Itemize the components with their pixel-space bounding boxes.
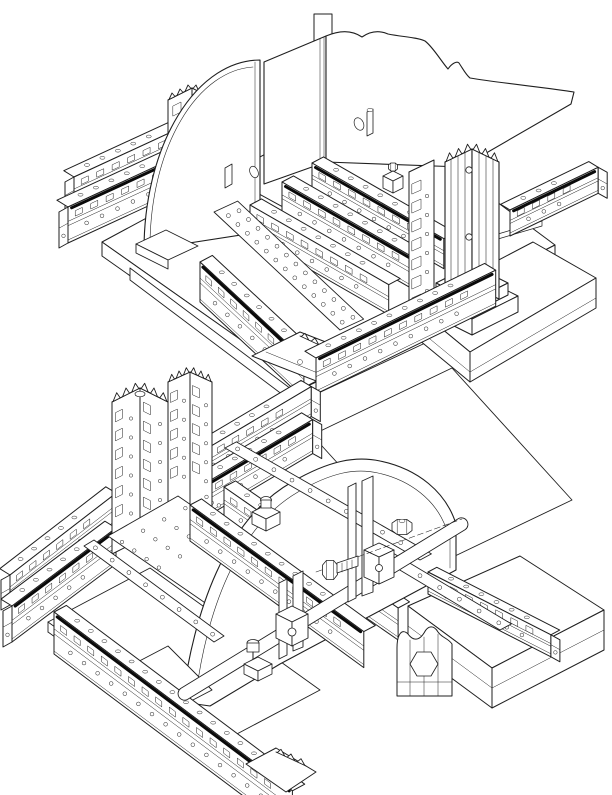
center-rails xyxy=(357,246,361,250)
drilled-base-plate xyxy=(205,495,209,499)
front-rail xyxy=(164,722,168,726)
center-rails xyxy=(345,253,350,256)
front-rail xyxy=(232,773,236,777)
center-rails xyxy=(304,187,309,190)
center-rails xyxy=(392,238,397,241)
tall-perforated-column xyxy=(204,423,207,426)
threaded-rod xyxy=(323,561,338,580)
front-right-rail xyxy=(424,327,428,331)
center-rails xyxy=(295,251,299,255)
front-rail xyxy=(137,702,141,706)
diagonal-drilled-strap xyxy=(284,253,288,257)
front-right-rail xyxy=(378,349,382,353)
front-left-rail xyxy=(257,306,262,309)
front-rail xyxy=(224,732,229,735)
diagonal-drilled-strap xyxy=(110,558,114,562)
fluted-column xyxy=(466,167,472,173)
diagonal-drilled-strap xyxy=(497,621,501,625)
diagonal-drilled-strap xyxy=(256,226,260,230)
diagonal-drilled-strap xyxy=(247,218,251,222)
diagonal-drilled-strap xyxy=(308,489,312,493)
diagonal-drilled-strap xyxy=(254,457,258,461)
diagonal-drilled-strap xyxy=(264,249,268,253)
front-right-rail xyxy=(341,336,346,339)
front-rail xyxy=(143,670,148,673)
front-left-rail xyxy=(282,329,287,332)
mid-rail-front xyxy=(246,570,250,574)
left-rails xyxy=(61,558,66,561)
right-rail xyxy=(536,189,541,192)
center-rails xyxy=(363,221,368,224)
perforated-strip xyxy=(425,213,429,217)
center-rails xyxy=(357,209,361,213)
front-rail xyxy=(156,681,161,684)
front-right-rail xyxy=(356,329,361,332)
front-right-rail xyxy=(418,299,423,302)
mid-rail-back xyxy=(245,494,250,497)
left-perforated-beam xyxy=(116,207,120,211)
left-perforated-beam xyxy=(85,221,89,225)
left-rails xyxy=(6,633,10,637)
left-rails xyxy=(72,516,77,519)
diagonal-drilled-strap xyxy=(266,235,270,239)
drilled-base-plate xyxy=(141,529,145,533)
diagonal-drilled-strap xyxy=(236,447,240,451)
left-rails xyxy=(32,547,37,550)
diagonal-drilled-strap xyxy=(245,231,249,235)
diagonal-drilled-strap xyxy=(144,583,148,587)
center-rails xyxy=(325,268,329,272)
upper-right-beam xyxy=(264,405,269,408)
tall-perforated-column xyxy=(129,417,132,420)
assembly-figure-top xyxy=(57,14,607,404)
right-slab-rail xyxy=(479,593,484,596)
diagonal-drilled-strap xyxy=(312,294,316,298)
mid-rail-front xyxy=(265,552,270,555)
upper-right-beam xyxy=(249,414,254,417)
mid-rail-front xyxy=(307,582,312,585)
center-rails xyxy=(333,204,338,207)
front-rail xyxy=(184,701,189,704)
tall-perforated-column xyxy=(158,422,161,425)
tall-perforated-column xyxy=(204,442,207,445)
front-right-rail xyxy=(394,342,398,346)
mid-rail-front xyxy=(210,512,215,515)
vertical-bolt xyxy=(247,643,259,652)
left-rails xyxy=(67,586,71,590)
assembly-figure-bottom xyxy=(0,368,604,795)
left-rails xyxy=(59,527,64,530)
center-rails xyxy=(327,229,331,233)
diagonal-drilled-strap xyxy=(457,597,461,601)
tall-perforated-column xyxy=(158,479,161,482)
front-rail xyxy=(177,733,181,737)
center-rails xyxy=(318,196,323,199)
center-rails xyxy=(331,244,336,247)
front-left-rail xyxy=(269,317,274,320)
upper-right-beam xyxy=(232,457,237,460)
left-perforated-beam xyxy=(124,172,129,175)
front-rail xyxy=(109,682,113,686)
left-perforated-beam xyxy=(109,179,114,182)
clamp-post-left xyxy=(288,628,296,636)
diagonal-drilled-strap xyxy=(294,262,298,266)
front-rail xyxy=(197,711,202,714)
front-rail xyxy=(191,743,195,747)
front-left-rail xyxy=(250,336,254,340)
mid-rail-front xyxy=(224,522,229,525)
front-right-rail xyxy=(402,307,407,310)
center-rails xyxy=(286,219,291,222)
drilled-base-plate xyxy=(166,546,170,550)
left-perforated-beam xyxy=(85,164,90,167)
tall-perforated-column xyxy=(182,418,185,421)
mid-rail-front xyxy=(320,592,325,595)
center-rails xyxy=(272,210,277,213)
left-rails xyxy=(45,537,50,540)
front-rail xyxy=(69,651,73,655)
left-perforated-beam xyxy=(115,149,120,152)
front-right-rail xyxy=(433,292,438,295)
drilled-base-plate xyxy=(175,526,179,530)
drilled-base-plate xyxy=(184,506,188,510)
center-rails xyxy=(348,213,353,216)
front-rail xyxy=(252,752,257,755)
clamp-post-right xyxy=(376,565,383,572)
front-left-rail xyxy=(219,271,224,274)
diagonal-drilled-strap xyxy=(226,214,230,218)
front-rail xyxy=(123,692,127,696)
clamp-block xyxy=(389,163,398,171)
upper-right-beam xyxy=(315,445,319,449)
mid-rail-front xyxy=(273,590,277,594)
diagonal-drilled-strap xyxy=(272,468,276,472)
front-rail xyxy=(170,691,175,694)
front-corner-profile xyxy=(298,360,303,365)
left-rails xyxy=(33,578,38,581)
front-rail xyxy=(150,712,154,716)
hex-nut xyxy=(399,519,405,523)
diagonal-drilled-strap xyxy=(236,223,240,227)
diagonal-drilled-strap xyxy=(418,574,422,578)
diagonal-drilled-strap xyxy=(381,530,385,534)
front-right-rail xyxy=(333,372,337,376)
mid-rail-front xyxy=(218,550,222,554)
mid-rail-front xyxy=(232,560,236,564)
right-slab-rail xyxy=(520,633,524,637)
front-rail xyxy=(211,721,216,724)
mid-rail-front xyxy=(260,580,264,584)
front-rail xyxy=(82,661,86,665)
front-rail xyxy=(205,753,209,757)
mid-rail-front xyxy=(205,540,209,544)
front-rail xyxy=(245,784,249,788)
left-perforated-beam xyxy=(62,234,66,238)
left-perforated-beam xyxy=(100,156,105,159)
diagonal-drilled-strap xyxy=(351,315,355,319)
diagonal-drilled-strap xyxy=(275,244,279,248)
diagonal-drilled-strap xyxy=(326,499,330,503)
technical-drawing-page xyxy=(0,0,612,795)
center-rails xyxy=(342,238,346,242)
right-rail xyxy=(601,186,605,190)
center-rails xyxy=(360,261,365,264)
pin-post xyxy=(367,108,373,111)
left-rails xyxy=(18,558,23,561)
left-rails xyxy=(54,596,58,600)
right-slab-rail xyxy=(524,616,529,619)
fluted-column xyxy=(466,234,472,240)
front-rail xyxy=(238,742,243,745)
diagonal-drilled-strap xyxy=(332,298,336,302)
upper-right-beam xyxy=(254,475,258,479)
diagonal-drilled-strap xyxy=(127,571,131,575)
diagonal-drilled-strap xyxy=(331,311,335,315)
right-rail xyxy=(542,210,546,214)
mid-rail-front xyxy=(287,600,291,604)
tall-perforated-column xyxy=(182,456,185,459)
front-rail xyxy=(129,660,134,663)
tall-perforated-column xyxy=(129,436,132,439)
rail-bolt-block xyxy=(261,500,271,508)
center-rails xyxy=(328,192,332,196)
tall-perforated-column xyxy=(182,399,185,402)
drilled-base-plate xyxy=(162,518,166,522)
right-slab-rail xyxy=(449,577,454,580)
diagonal-drilled-strap xyxy=(194,620,198,624)
front-right-rail xyxy=(448,284,453,287)
tall-perforated-column xyxy=(129,455,132,458)
mid-rail-back xyxy=(239,519,243,523)
center-rails xyxy=(343,200,347,204)
center-rails xyxy=(377,230,382,233)
right-slab-rail xyxy=(554,651,558,655)
front-left-rail xyxy=(244,294,249,297)
diagonal-drilled-strap xyxy=(293,276,297,280)
center-rails xyxy=(313,221,317,225)
left-perforated-beam xyxy=(146,135,151,138)
drilled-base-plate xyxy=(154,538,158,542)
perforated-strip xyxy=(425,270,429,274)
front-rail xyxy=(218,763,222,767)
drilled-base-plate xyxy=(120,540,124,544)
drilled-base-plate xyxy=(133,549,137,553)
tall-perforated-column xyxy=(182,437,185,440)
right-rail xyxy=(557,202,561,206)
left-perforated-beam xyxy=(78,193,83,196)
center-rails xyxy=(310,259,314,263)
left-rails xyxy=(27,616,31,620)
diagonal-drilled-strap xyxy=(160,595,164,599)
center-rails xyxy=(354,285,358,289)
center-rails xyxy=(386,263,390,267)
perforated-strip xyxy=(425,251,429,255)
front-left-rail xyxy=(232,283,237,286)
center-rails xyxy=(348,177,353,180)
drilled-base-plate xyxy=(217,504,221,508)
clamp-post-right xyxy=(348,483,356,602)
center-rails xyxy=(372,217,376,221)
mid-rail-front xyxy=(238,532,243,535)
front-right-rail xyxy=(348,364,352,368)
diagonal-drilled-strap xyxy=(477,609,481,613)
front-rail xyxy=(116,650,121,653)
tall-perforated-column xyxy=(158,441,161,444)
right-slab-rail xyxy=(551,635,560,662)
diagonal-drilled-strap xyxy=(177,608,181,612)
left-rails xyxy=(81,576,85,580)
mid-rail-front xyxy=(279,562,284,565)
left-perforated-beam xyxy=(93,186,98,189)
left-perforated-beam xyxy=(131,200,135,204)
front-right-rail xyxy=(387,314,392,317)
front-right-rail xyxy=(409,334,413,338)
center-rails xyxy=(298,212,302,216)
center-rails xyxy=(402,234,406,238)
diagonal-drilled-strap xyxy=(255,240,259,244)
tall-perforated-column xyxy=(129,512,132,515)
diagonal-drilled-strap xyxy=(237,209,241,213)
mid-rail-front xyxy=(328,630,332,634)
diagonal-drilled-strap xyxy=(211,632,215,636)
drilled-base-plate xyxy=(145,557,149,561)
center-rails xyxy=(316,236,321,239)
tall-perforated-column xyxy=(204,461,207,464)
upper-right-beam xyxy=(283,457,287,461)
center-rails xyxy=(378,194,383,197)
front-rail xyxy=(75,619,80,622)
technical-drawing xyxy=(0,0,612,795)
front-right-rail xyxy=(372,322,377,325)
upper-right-beam xyxy=(276,431,281,434)
diagonal-drilled-strap xyxy=(438,586,442,590)
upper-right-beam xyxy=(218,466,223,469)
upper-right-beam xyxy=(235,422,240,425)
drilled-base-plate xyxy=(178,555,182,559)
tall-perforated-column xyxy=(129,493,132,496)
diagonal-drilled-strap xyxy=(322,289,326,293)
front-right-rail xyxy=(455,312,459,316)
front-right-rail xyxy=(439,319,443,323)
mid-rail-front xyxy=(252,542,257,545)
diagonal-drilled-strap xyxy=(302,285,306,289)
center-rails xyxy=(387,226,391,230)
tall-perforated-column xyxy=(129,474,132,477)
left-rails xyxy=(20,589,25,592)
diagonal-drilled-strap xyxy=(303,271,307,275)
diagonal-drilled-strap xyxy=(321,302,325,306)
sheet-panel xyxy=(326,32,574,167)
tall-perforated-column xyxy=(158,498,161,501)
front-left-rail xyxy=(238,324,242,328)
left-perforated-beam xyxy=(140,165,145,168)
drilled-base-plate xyxy=(157,566,161,570)
right-rail xyxy=(521,197,526,200)
front-right-rail xyxy=(363,357,367,361)
upper-right-beam xyxy=(314,409,318,413)
center-rails xyxy=(301,227,306,230)
right-rail xyxy=(551,182,556,185)
center-rails xyxy=(340,276,344,280)
left-rails xyxy=(74,548,79,551)
right-slab-rail xyxy=(509,608,514,611)
diagonal-drilled-strap xyxy=(93,546,97,550)
left-perforated-beam xyxy=(131,142,136,145)
perforated-strip xyxy=(425,194,429,198)
front-rail xyxy=(96,671,100,675)
center-rails xyxy=(363,185,368,188)
diagonal-drilled-strap xyxy=(290,478,294,482)
upper-right-beam xyxy=(262,440,267,443)
diagonal-drilled-strap xyxy=(341,306,345,310)
tall-perforated-column xyxy=(204,480,207,483)
tall-perforated-column xyxy=(158,460,161,463)
diagonal-drilled-strap xyxy=(283,267,287,271)
perforated-strip xyxy=(425,232,429,236)
front-left-rail xyxy=(213,301,217,305)
base-bracket-tab xyxy=(225,164,232,188)
right-rail xyxy=(527,217,531,221)
upper-right-beam xyxy=(220,431,225,434)
center-rails xyxy=(372,254,376,258)
tall-perforated-column xyxy=(182,475,185,478)
left-perforated-beam xyxy=(100,214,104,218)
front-rail xyxy=(88,630,93,633)
diagonal-drilled-strap xyxy=(313,280,317,284)
tall-perforated-column xyxy=(204,404,207,407)
center-rails xyxy=(393,202,398,205)
right-rail xyxy=(598,167,607,198)
front-left-rail xyxy=(226,313,230,317)
right-slab-rail xyxy=(464,585,469,588)
front-rail xyxy=(102,640,107,643)
right-slab-rail xyxy=(494,601,499,604)
front-right-rail xyxy=(326,344,331,347)
diagonal-drilled-strap xyxy=(340,320,344,324)
left-rails xyxy=(40,606,44,610)
diagonal-drilled-strap xyxy=(274,258,278,262)
tall-perforated-column xyxy=(135,391,145,397)
left-rails xyxy=(47,568,52,571)
pin-post xyxy=(367,109,373,136)
center-rails xyxy=(334,168,339,171)
